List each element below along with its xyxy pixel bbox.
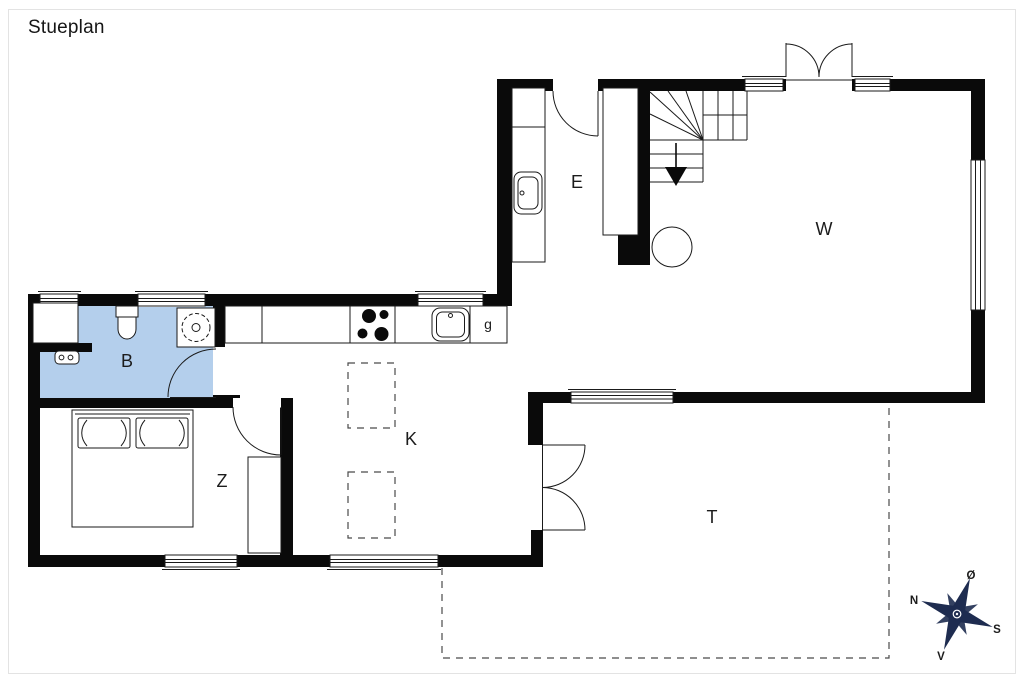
room-label-entrance: E <box>571 172 583 192</box>
window <box>415 292 486 307</box>
entry-door <box>553 91 598 136</box>
wall-stair <box>638 87 650 235</box>
opening-bedroom-door <box>233 398 281 408</box>
french-door-north <box>786 43 852 80</box>
entry-sink <box>514 172 542 214</box>
toilet <box>116 306 138 339</box>
window <box>852 77 893 92</box>
compass-north-label: N <box>910 595 918 607</box>
bedroom-closet <box>248 457 281 553</box>
bedroom-door <box>233 407 281 455</box>
room-label-kitchen: K <box>405 429 417 449</box>
bathroom-cabinet <box>33 303 78 343</box>
floorplan-drawing: B Z K E W T g N Ø S V <box>0 0 1024 682</box>
kitchen-counter <box>225 306 507 343</box>
window <box>742 77 786 92</box>
opening-entry-door <box>553 78 598 92</box>
wall-bedroom-east <box>280 398 293 567</box>
opening-terrace-door <box>528 445 543 530</box>
terrace-door <box>543 445 586 530</box>
stairs <box>650 91 747 186</box>
floorplan-page: Stueplan <box>0 0 1024 682</box>
window <box>327 555 441 570</box>
compass-rose: N Ø S V <box>908 565 1005 663</box>
opening-bathroom-door <box>213 347 225 395</box>
compass-east-label: Ø <box>967 570 976 582</box>
room-label-living: W <box>816 219 833 239</box>
shower <box>177 308 215 347</box>
wall-left-upper <box>497 79 512 306</box>
hand-basin <box>55 351 79 364</box>
compass-south-label: S <box>993 624 1001 636</box>
room-label-terrace: T <box>707 507 718 527</box>
chimney <box>618 235 650 265</box>
bedroom-furniture <box>72 410 281 553</box>
window <box>568 390 676 404</box>
room-label-bedroom: Z <box>217 471 228 491</box>
wall-kitchen-east-upper <box>528 392 543 445</box>
room-label-bathroom: B <box>121 351 133 371</box>
entry-counter <box>512 88 545 262</box>
stairs-down-arrow <box>665 143 687 186</box>
wall-kitchen-east-lower <box>531 530 543 567</box>
compass-star <box>908 565 1005 662</box>
hall-closet <box>603 88 638 235</box>
window <box>971 160 985 310</box>
kitchen-sink <box>432 308 469 341</box>
wood-stove <box>652 227 692 267</box>
window <box>135 292 208 307</box>
double-bed <box>72 410 193 527</box>
window <box>162 555 240 570</box>
room-label-pantry: g <box>484 316 492 332</box>
wall-bathroom-south <box>28 398 233 408</box>
compass-west-label: V <box>937 651 945 663</box>
terrace-boundary <box>442 404 889 658</box>
dining-dashed-furniture <box>348 363 395 538</box>
